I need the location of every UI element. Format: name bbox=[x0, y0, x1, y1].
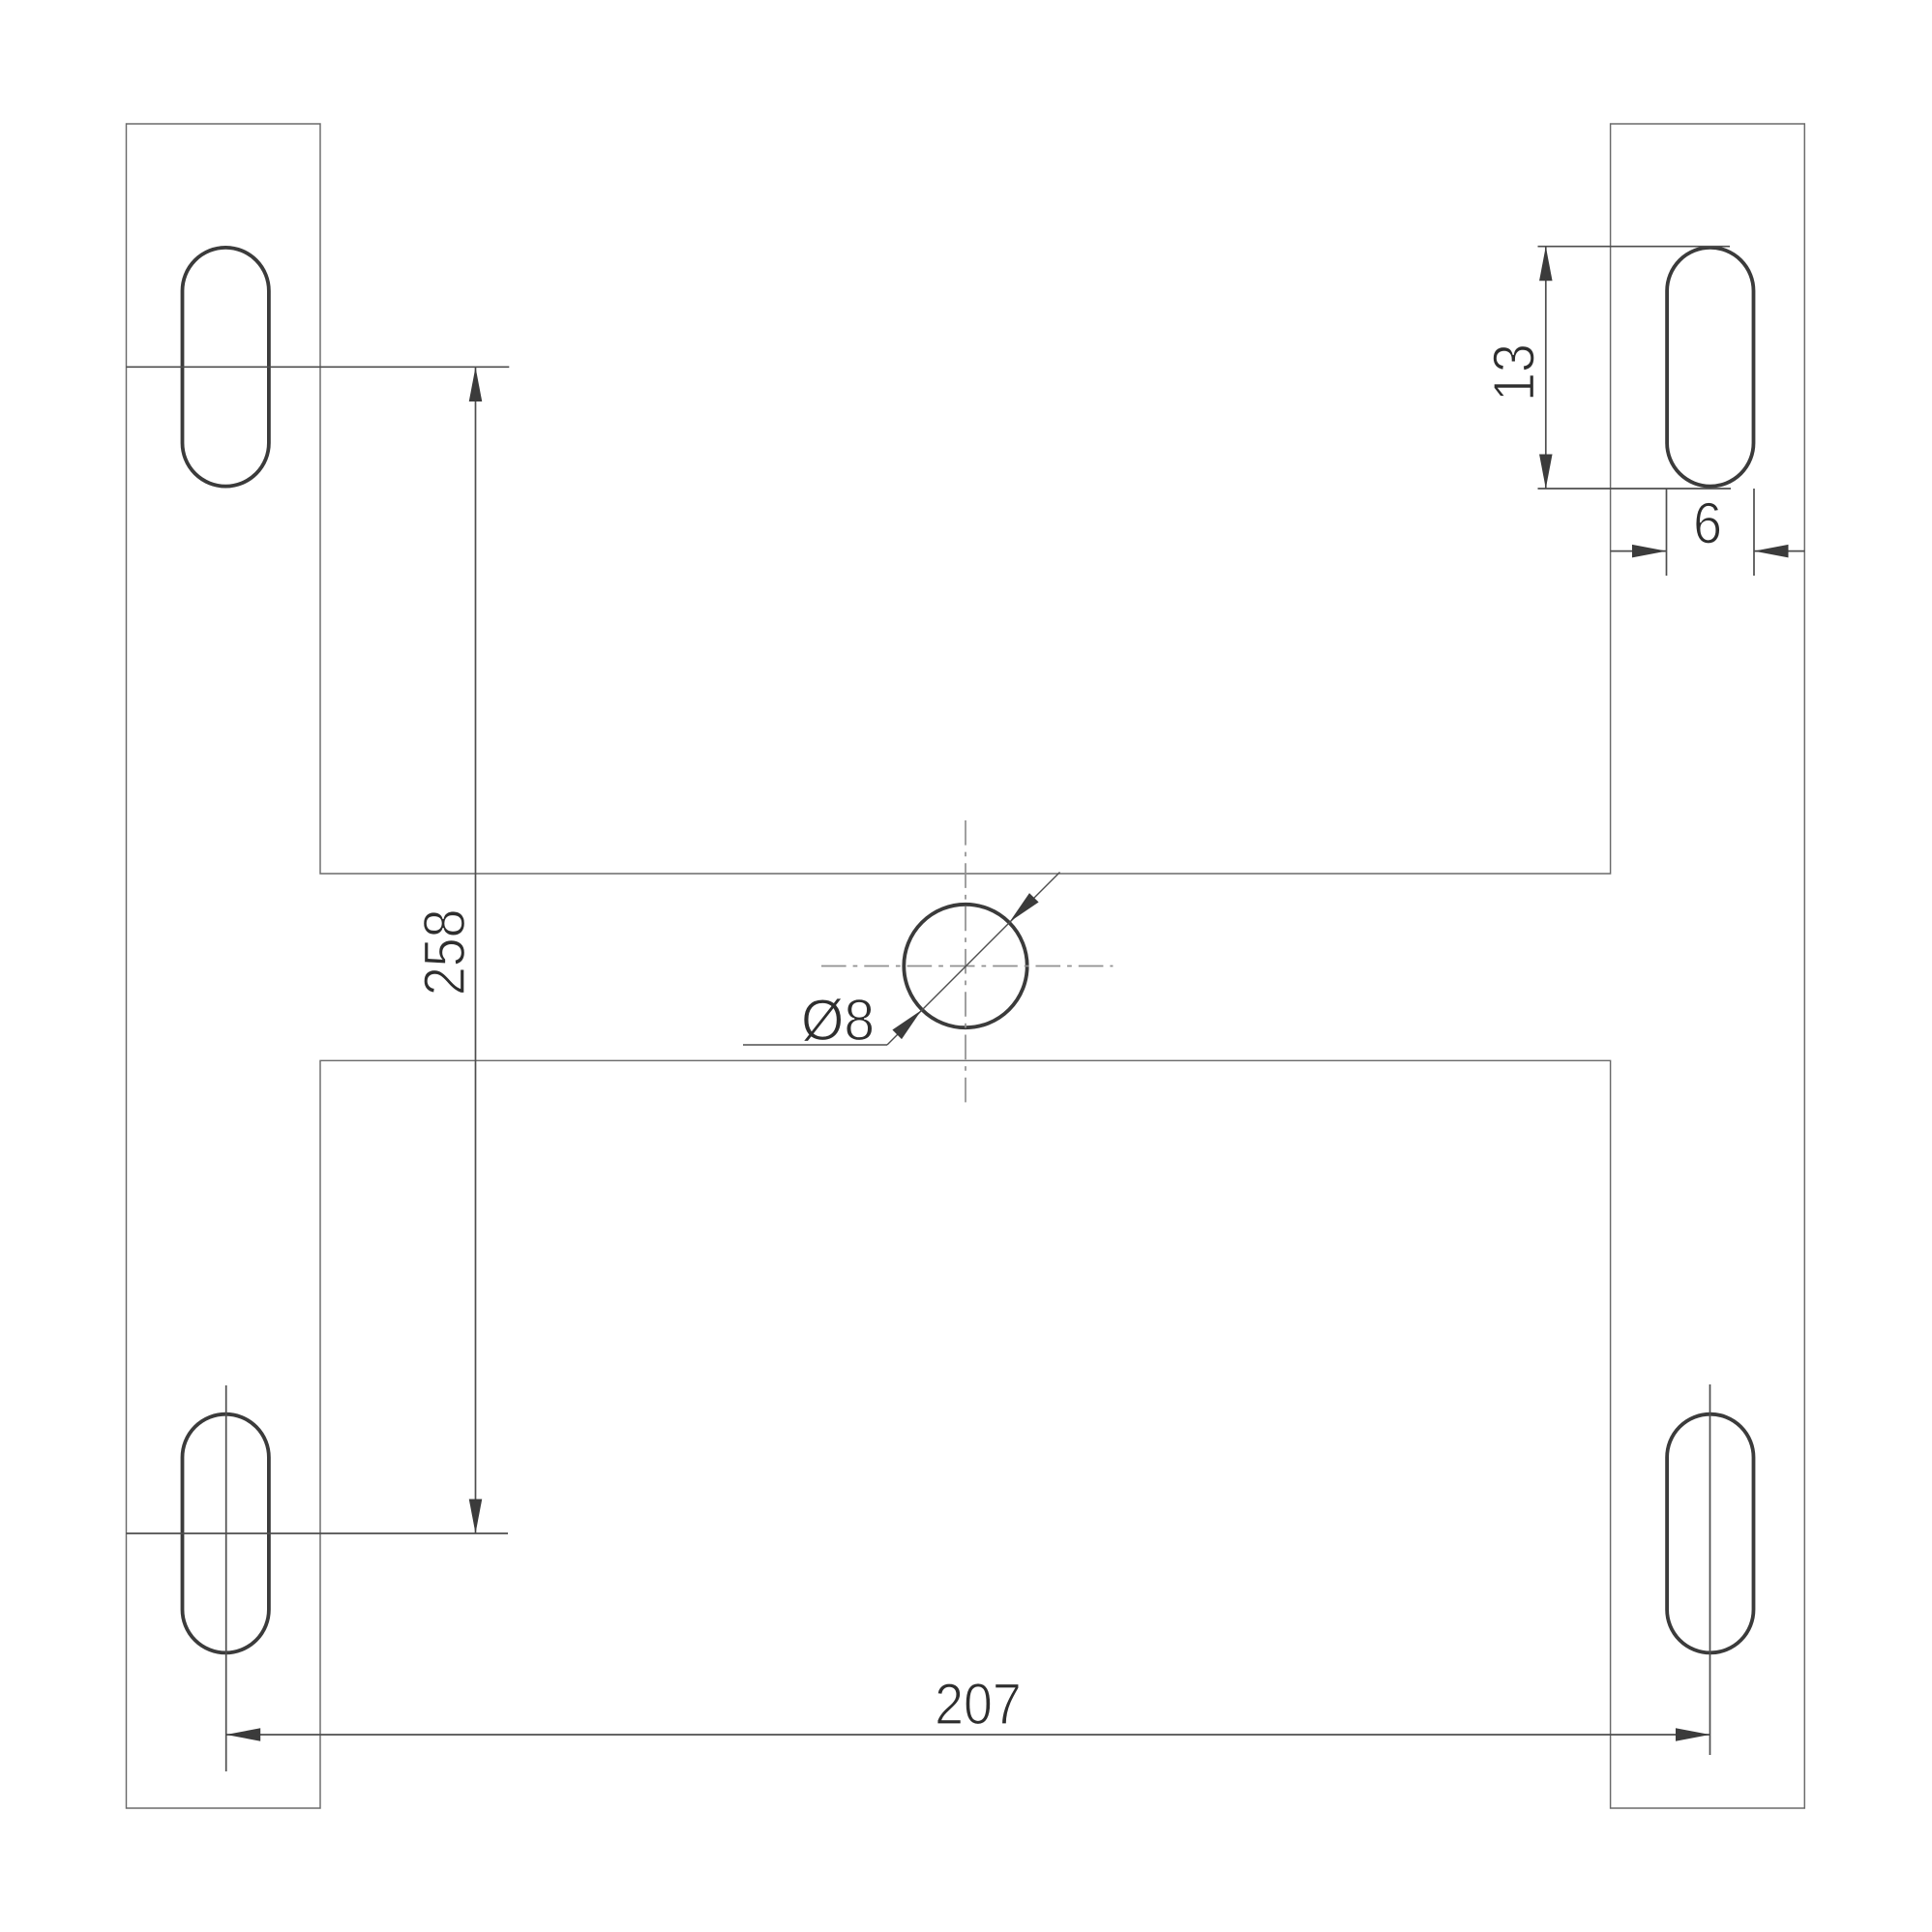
svg-text:Ø8: Ø8 bbox=[801, 989, 875, 1054]
svg-text:6: 6 bbox=[1693, 491, 1722, 556]
svg-text:13: 13 bbox=[1482, 343, 1547, 401]
svg-text:258: 258 bbox=[412, 909, 477, 996]
svg-text:207: 207 bbox=[935, 1672, 1022, 1737]
